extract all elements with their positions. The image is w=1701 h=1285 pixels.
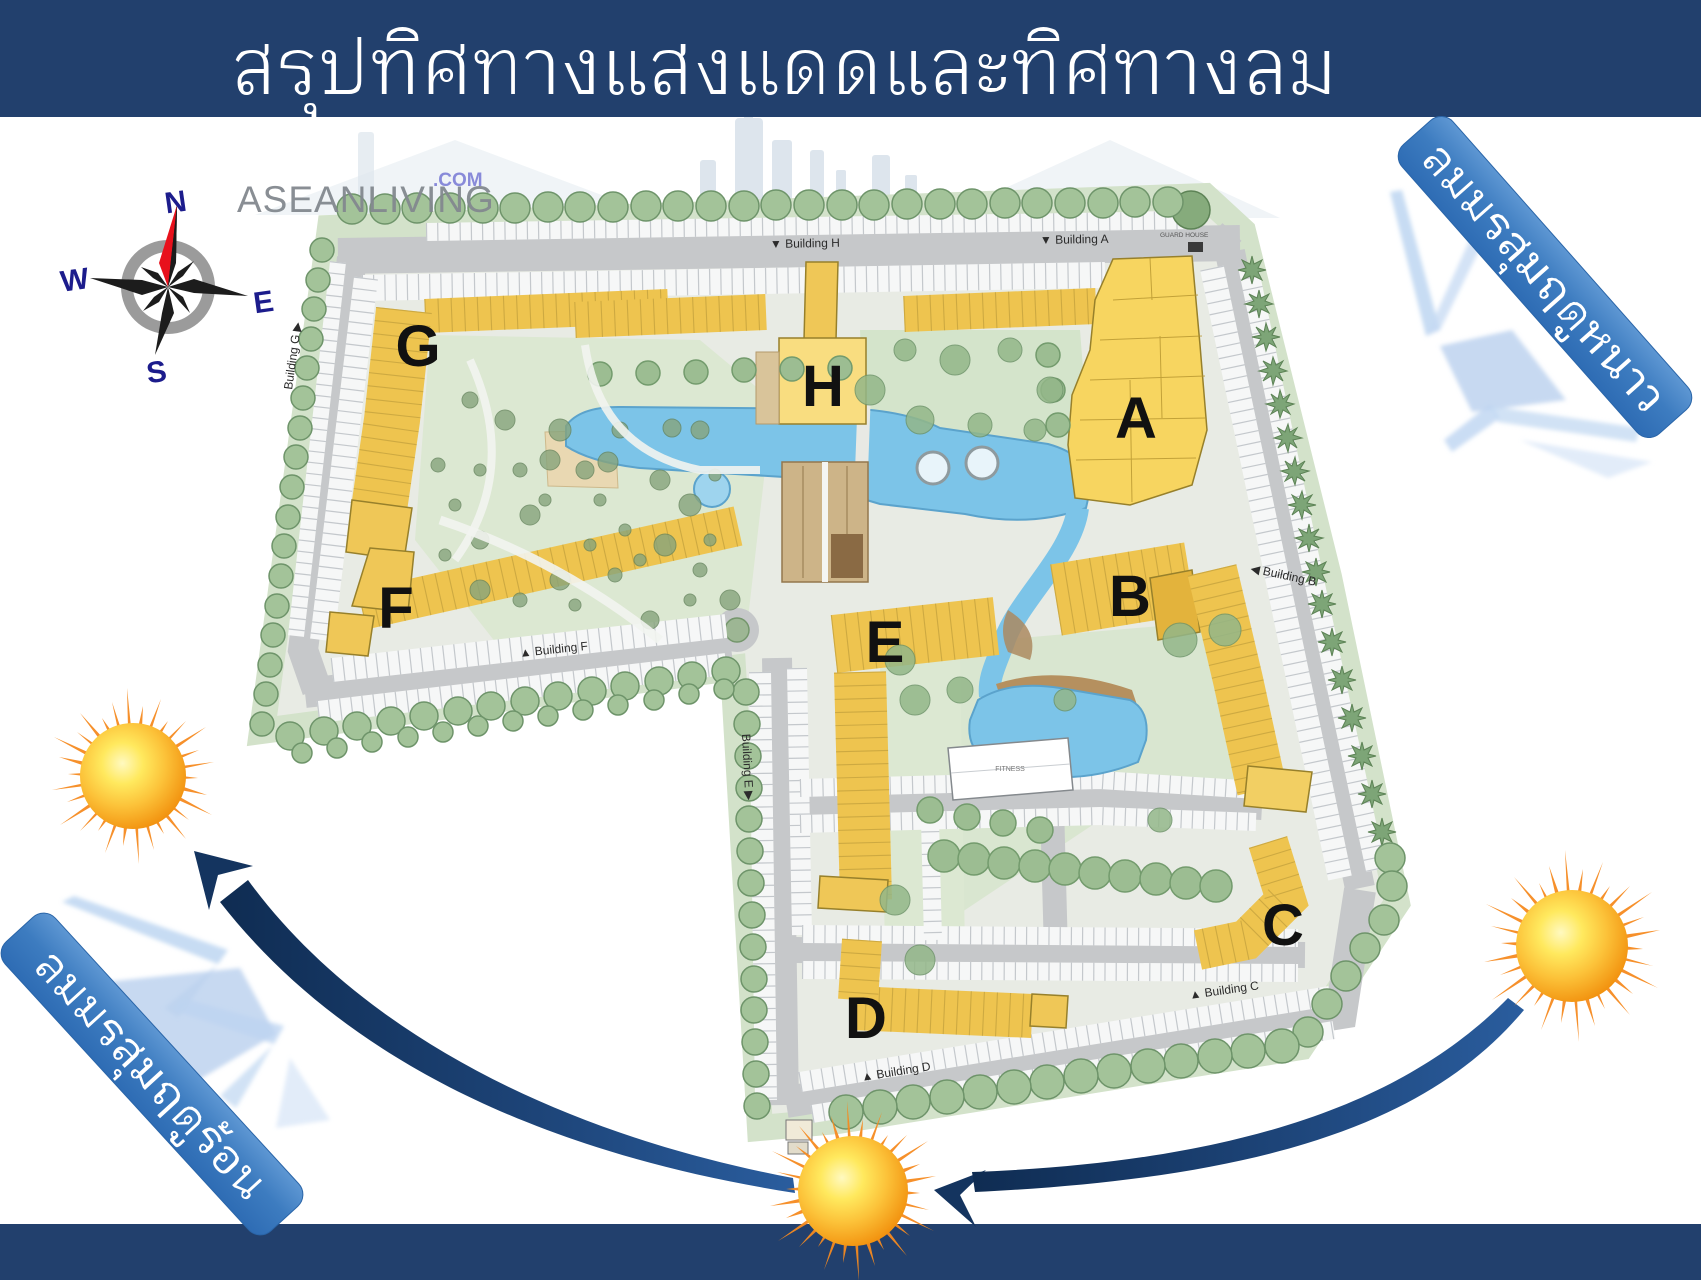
svg-text:C: C	[1262, 893, 1304, 958]
svg-text:.COM: .COM	[433, 170, 483, 191]
svg-text:H: H	[802, 354, 844, 419]
svg-text:▼ Building A: ▼ Building A	[1040, 232, 1109, 247]
svg-text:E: E	[866, 610, 905, 675]
svg-text:B: B	[1109, 564, 1151, 629]
svg-text:N: N	[163, 185, 189, 221]
svg-text:▼ Building H: ▼ Building H	[770, 236, 840, 251]
svg-text:D: D	[845, 986, 887, 1051]
svg-text:A: A	[1115, 386, 1157, 451]
svg-text:W: W	[58, 262, 91, 299]
svg-text:G: G	[395, 314, 440, 379]
svg-text:F: F	[378, 576, 413, 641]
svg-text:GUARD HOUSE: GUARD HOUSE	[1160, 232, 1209, 239]
svg-text:FITNESS: FITNESS	[995, 766, 1025, 773]
